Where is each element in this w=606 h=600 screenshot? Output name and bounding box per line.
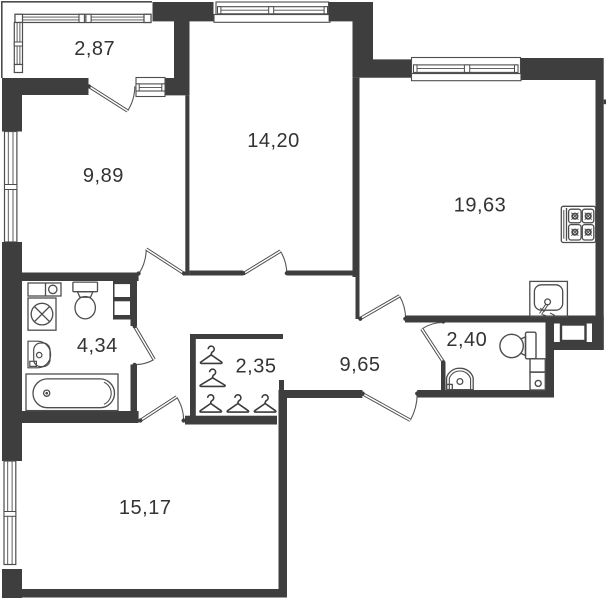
svg-text:14,20: 14,20 <box>247 130 300 152</box>
svg-text:19,63: 19,63 <box>454 195 507 217</box>
svg-text:4,34: 4,34 <box>77 335 118 357</box>
svg-text:9,65: 9,65 <box>340 354 381 376</box>
svg-text:2,87: 2,87 <box>74 38 115 60</box>
svg-text:15,17: 15,17 <box>119 497 172 519</box>
svg-text:2,35: 2,35 <box>236 356 277 378</box>
svg-text:9,89: 9,89 <box>83 165 124 187</box>
svg-text:2,40: 2,40 <box>446 329 487 351</box>
